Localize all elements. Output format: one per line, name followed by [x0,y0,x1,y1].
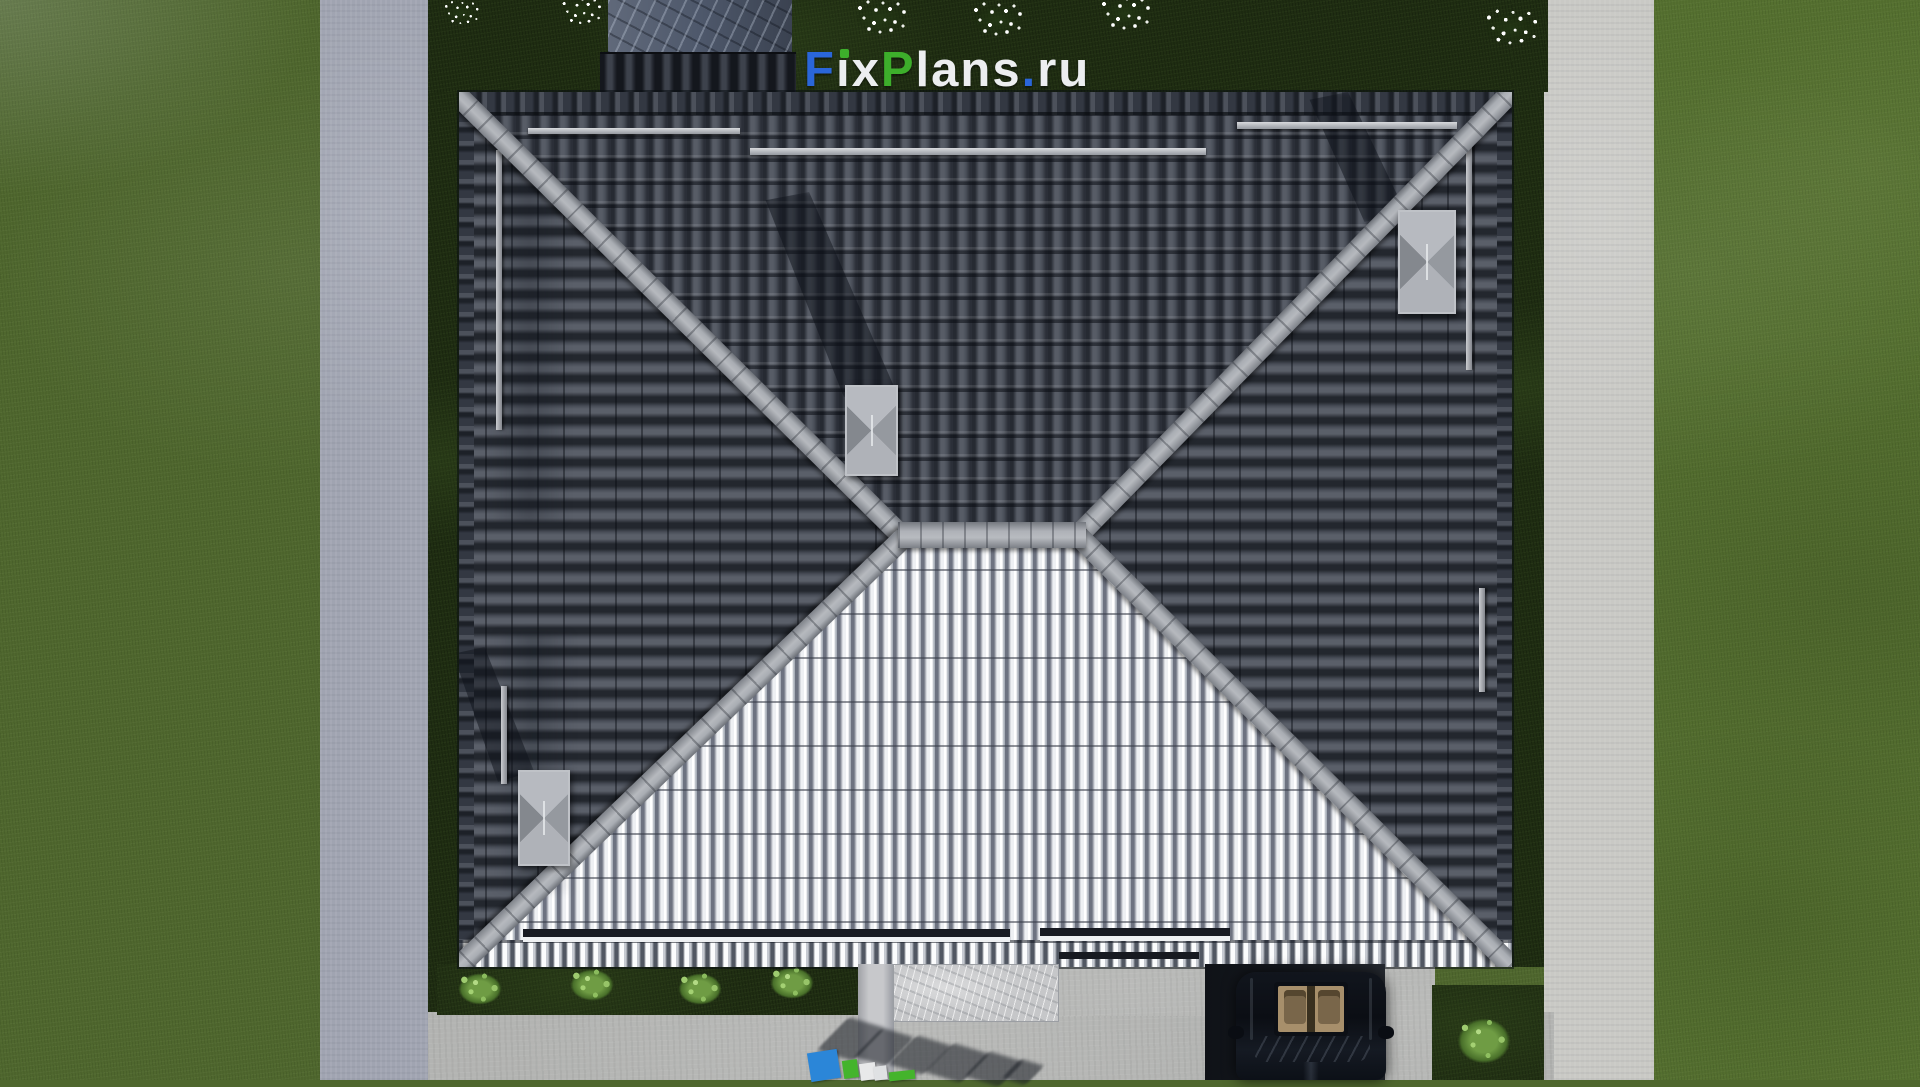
stone-patio [608,0,792,56]
eave-left [459,96,474,948]
flower-cluster [968,0,1026,38]
paving-right-of-entrance [1057,964,1217,1016]
chimney [1398,210,1456,314]
watermark: FıxPlans.ru [804,42,1090,98]
lawn-right [1654,0,1920,1080]
flower-cluster [1096,0,1154,32]
bush [564,962,620,1008]
ground-sign-block [842,1059,859,1079]
flower-cluster [852,0,910,36]
chimney-cap [847,387,896,474]
snow-stop-bar [1040,928,1230,936]
flower-cluster [1481,5,1542,47]
garden-strip-left [428,92,459,1012]
walkway-left [320,0,428,1080]
house-roof [459,92,1512,967]
snow-rail [1479,588,1485,692]
snow-rail [750,148,1206,155]
car-roof-rail [1250,978,1253,1040]
eave-right [1497,96,1512,948]
chimney [518,770,570,866]
tile-wall [600,52,796,94]
chimney-cap [1400,212,1454,312]
chimney-cap [520,772,568,864]
entrance-stone-pad [893,964,1059,1022]
snow-stop-bar [523,929,1010,937]
flower-cluster [558,0,604,26]
chimney [845,385,898,476]
snow-stop-bar-edge [1040,936,1230,941]
snow-stop-bar [1059,952,1199,959]
main-ridge [898,522,1086,548]
car-mirror [1228,1026,1244,1039]
car-seat [1284,990,1306,1024]
car-hood [1246,1062,1376,1080]
ground-sign-block [807,1049,841,1082]
walkway-right [1544,0,1654,1080]
bush [672,966,728,1012]
car-seat [1318,990,1340,1024]
snow-rail [528,128,740,134]
ground-sign-block [873,1065,888,1080]
eave-bottom [459,940,1512,967]
car-interior [1278,986,1344,1032]
snow-rail [501,686,507,784]
flower-cluster [441,0,482,26]
car-mirror [1378,1026,1394,1039]
car-windshield [1252,1036,1370,1062]
aerial-render-scene: { "scene": { "type": "top-down 3d archit… [0,0,1920,1080]
bush-large [1450,1008,1518,1074]
car [1236,972,1386,1080]
snow-rail [496,150,502,430]
car-roof-rail [1369,978,1372,1040]
snow-stop-bar-edge [523,937,1010,942]
garden-strip-right [1512,0,1544,967]
snow-rail [1466,140,1472,370]
snow-rail [1237,122,1457,129]
car-sunroof [1274,982,1348,1036]
bush [452,966,508,1012]
